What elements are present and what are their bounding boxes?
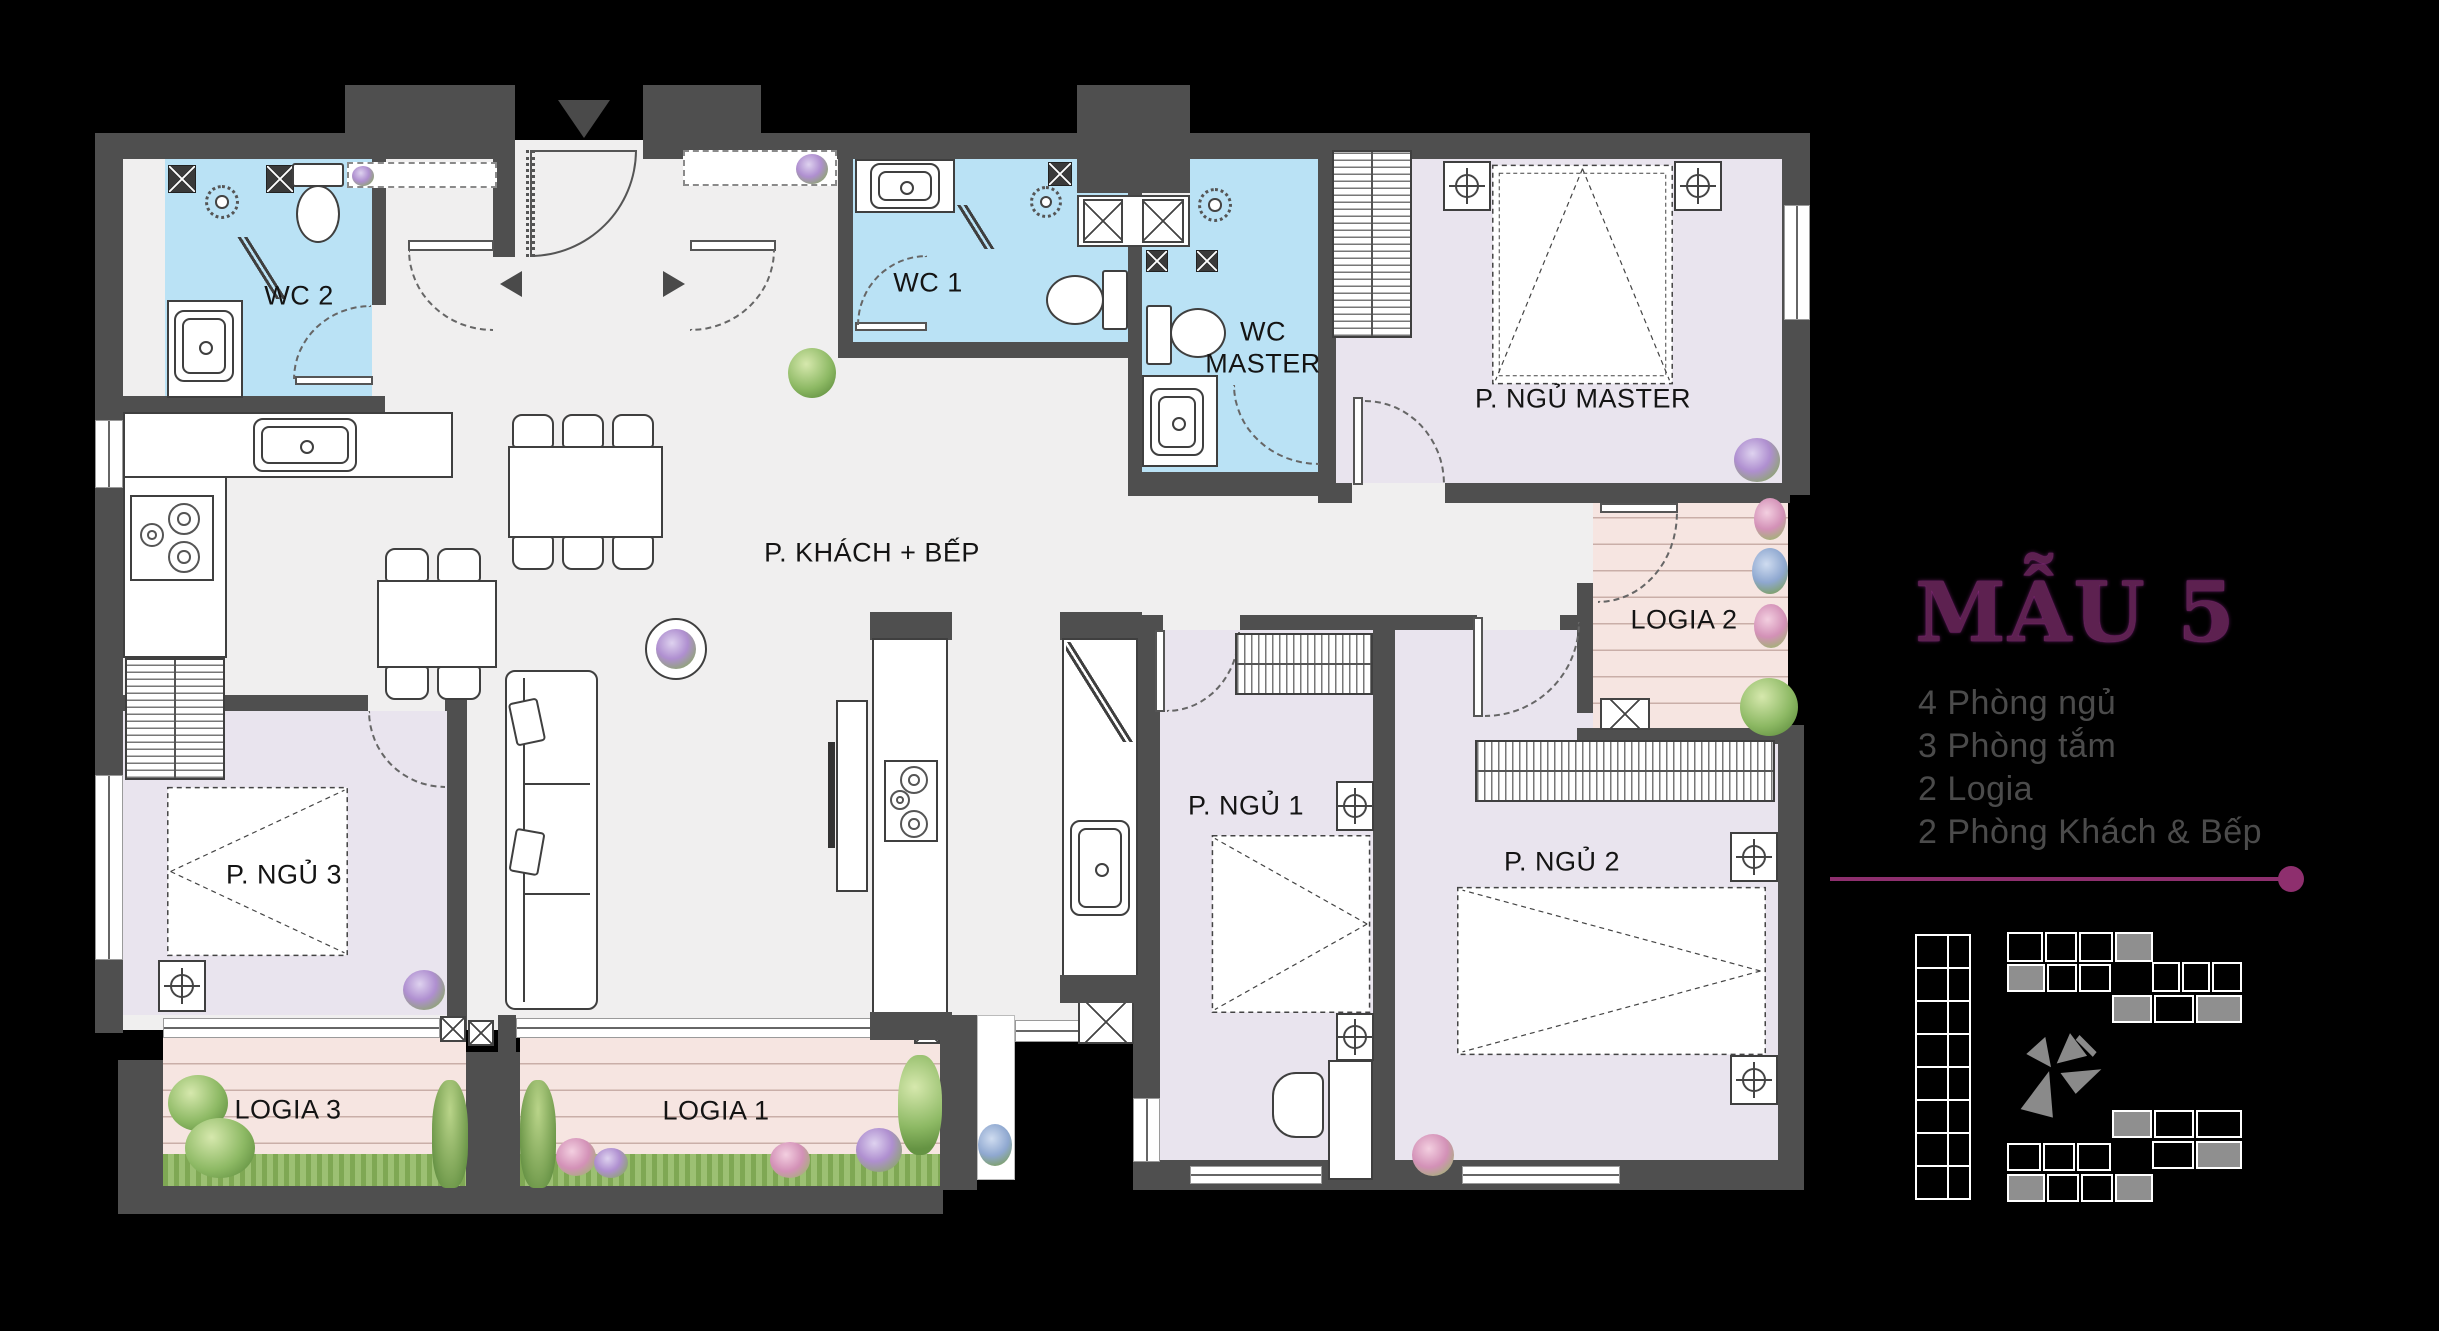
wc1-toilet-bowl (1046, 275, 1104, 325)
wcm-vent2-icon (1196, 250, 1218, 272)
wall-bedroom1-2-divider (1373, 630, 1395, 1160)
logia1-bush (898, 1055, 942, 1155)
island2-cap-top (1060, 612, 1142, 640)
wall-bedroom2-right (1778, 725, 1804, 1190)
room-label-wc-master: WC MASTER (1200, 316, 1326, 381)
kitchen-sink (253, 418, 357, 472)
wc2-vent-icon (168, 165, 196, 193)
small-table-chair (385, 666, 429, 700)
wall-bedroom3-right (447, 695, 467, 1030)
keyplan-building-left (1915, 934, 1971, 1200)
pillar-xbox-logia3 (440, 1016, 466, 1042)
wall-logia1-right-pillar (940, 1015, 977, 1190)
dining-chair (612, 414, 654, 448)
keyplan-unit (2047, 1174, 2079, 1202)
flower-front-window (978, 1124, 1012, 1166)
kitchen-wardrobe-rack (125, 658, 225, 780)
keyplan-unit (2079, 932, 2113, 962)
bedroom1-nightstand (1336, 1013, 1374, 1061)
pillar-xbox-logia1 (468, 1020, 494, 1046)
kitchen-stove (130, 495, 214, 581)
logia1-flowers (770, 1142, 810, 1178)
unit-title: MẪU 5 (1915, 572, 2237, 654)
bedroom1-door-leaf (1155, 630, 1165, 712)
logia3-tall-plant (432, 1080, 468, 1188)
wall-hall-center (1240, 615, 1477, 630)
wall-logia3-left-pillar (118, 1060, 163, 1186)
lamp-icon (170, 974, 194, 998)
lamp-icon (1742, 845, 1766, 869)
keyplan-unit (2043, 1143, 2075, 1171)
dining-chair (512, 536, 554, 570)
keyplan-unit-highlight (2196, 995, 2242, 1023)
burner-icon (900, 766, 928, 794)
plant-living (788, 348, 836, 398)
room-label-wc2: WC 2 (264, 281, 334, 312)
logia3-bush (185, 1118, 255, 1178)
wall-logia3-base (118, 1186, 466, 1214)
room-label-logia1: LOGIA 1 (662, 1096, 769, 1127)
lamp-icon (1742, 1068, 1766, 1092)
keyplan-unit-highlight (2115, 1174, 2153, 1202)
master-nightstand (1674, 161, 1722, 211)
keyplan-unit (2152, 962, 2180, 992)
small-table-chair (437, 548, 481, 582)
keyplan-unit-highlight (2007, 1174, 2045, 1202)
keyplan-unit (2152, 1141, 2194, 1169)
bedroom2-bed (1453, 885, 1770, 1057)
logia2-plant (1754, 498, 1786, 540)
wall-logia-center-pillar (466, 1052, 520, 1214)
keyplan-unit (2045, 932, 2077, 962)
wall-wc1-bottom (838, 342, 1140, 358)
logia2-plant (1752, 548, 1788, 594)
wall-entry-left (493, 133, 515, 257)
bedroom2-nightstand (1730, 832, 1778, 882)
sill-plant (352, 166, 374, 186)
island1-stove (884, 760, 938, 842)
wc1-vent-icon (1048, 162, 1072, 186)
window-left-kitchen (95, 420, 123, 488)
burner-icon (890, 790, 910, 810)
room-label-bedroom2: P. NGỦ 2 (1504, 847, 1620, 878)
logia1-flowers (856, 1128, 902, 1172)
wc1-toilet-tank (1102, 270, 1128, 330)
window-master-right (1784, 205, 1810, 320)
keyplan-unit (2079, 964, 2111, 992)
keyplan-unit-highlight (2112, 1110, 2152, 1138)
bedroom3-nightstand (158, 960, 206, 1012)
wall-top-left (95, 133, 515, 159)
keyplan-unit (2154, 1110, 2194, 1138)
room-label-bedroom1: P. NGỦ 1 (1188, 791, 1304, 822)
window-bedroom1-bottom (1190, 1166, 1322, 1184)
keyplan-unit (2196, 1110, 2242, 1138)
pillar-xbox-logia2 (1600, 698, 1650, 730)
burner-icon (168, 503, 200, 535)
bedroom2-door-leaf (1473, 617, 1483, 717)
master-nightstand (1443, 161, 1491, 211)
bedroom1-chair (1272, 1072, 1324, 1138)
wc1-shower-icon (1030, 186, 1062, 218)
dining-chair (562, 414, 604, 448)
bedroom1-bed (1210, 833, 1372, 1015)
wall-living-logia-stub (498, 1015, 516, 1057)
wc2-toilet-tank (292, 163, 344, 187)
closet-xbox (1142, 199, 1184, 243)
wall-top-block-left (345, 85, 515, 135)
small-table-chair (385, 548, 429, 582)
keyplan-unit-highlight (2115, 932, 2153, 962)
wcm-shower-icon (1198, 188, 1232, 222)
entry-door-leaf (526, 150, 535, 257)
room-label-logia3: LOGIA 3 (234, 1095, 341, 1126)
logia1-tall-plant (520, 1080, 556, 1188)
wc1-shower-glass (950, 205, 1008, 249)
island2-sink (1070, 820, 1130, 916)
keyplan-unit (2047, 964, 2077, 992)
entrance-arrow-icon (558, 100, 610, 138)
lamp-icon (1455, 174, 1479, 198)
wall-master-bottom-right (1445, 483, 1790, 503)
bedroom2-nightstand (1730, 1055, 1778, 1105)
wcm-toilet-tank (1146, 305, 1172, 365)
bedroom1-nightstand (1336, 781, 1374, 831)
window-logia3-top (163, 1018, 440, 1038)
wc2-vent2-icon (266, 165, 294, 193)
wall-logia1-base (513, 1186, 943, 1214)
wc2-sink (174, 310, 234, 382)
master-wardrobe-rack (1332, 150, 1412, 338)
master-door-leaf (1353, 397, 1363, 485)
wc2-shower-icon (205, 185, 239, 219)
feature-list: 4 Phòng ngủ 3 Phòng tắm 2 Logia 2 Phòng … (1918, 682, 2262, 854)
tv-console (836, 700, 868, 892)
lamp-icon (1343, 1025, 1367, 1049)
keyplan-unit-highlight (2007, 964, 2045, 992)
burner-icon (900, 810, 928, 838)
closet-xbox (1083, 199, 1123, 243)
room-label-wc1: WC 1 (893, 268, 963, 299)
dining-chair (612, 536, 654, 570)
room-label-living-kitchen: P. KHÁCH + BẾP (764, 538, 980, 569)
keyplan-unit-highlight (2196, 1141, 2242, 1169)
pillar-xbox-aisle (1078, 1000, 1134, 1044)
room-label-master-bedroom: P. NGỦ MASTER (1475, 384, 1691, 415)
small-table (377, 580, 497, 668)
bedroom1-desk (1328, 1060, 1373, 1180)
keyplan-unit (2081, 1174, 2113, 1202)
dining-chair (512, 414, 554, 448)
keyplan-unit (2154, 995, 2194, 1023)
bedroom2-plant (1412, 1134, 1454, 1176)
feature-item: 2 Phòng Khách & Bếp (1918, 811, 2262, 854)
wall-wcm-bottom (1128, 472, 1320, 496)
keyplan-unit (2212, 962, 2242, 992)
island2-cabinet (1066, 642, 1134, 742)
wall-logia2-left (1577, 583, 1593, 713)
wall-wc1-left (838, 133, 853, 343)
dining-chair (562, 536, 604, 570)
site-key-plan (1913, 928, 2253, 1213)
rug-plant (656, 629, 696, 669)
window-left-bedroom3 (95, 775, 123, 960)
logia2-bush (1740, 678, 1798, 736)
logia1-flowers (556, 1138, 596, 1176)
island1-cap-bottom (870, 1012, 952, 1040)
wcm-vent-icon (1146, 250, 1168, 272)
master-bed (1490, 162, 1675, 387)
burner-icon (168, 541, 200, 573)
small-table-chair (437, 666, 481, 700)
keyplan-unit (2077, 1143, 2111, 1171)
feature-item: 4 Phòng ngủ (1918, 682, 2262, 725)
door-arrow-left-icon (500, 271, 522, 297)
logia2-plant (1754, 604, 1788, 648)
divider-line (1830, 877, 2282, 881)
window-bedroom2-bottom (1462, 1166, 1620, 1184)
wc1-sink (870, 163, 940, 209)
info-panel: MẪU 5 4 Phòng ngủ 3 Phòng tắm 2 Logia 2 … (1830, 560, 2430, 1320)
keyplan-unit (2182, 962, 2210, 992)
feature-item: 3 Phòng tắm (1918, 725, 2262, 768)
bedroom3-plant (403, 970, 445, 1010)
wall-wc2-bottom (123, 396, 385, 412)
lamp-icon (1686, 174, 1710, 198)
burner-icon (140, 523, 164, 547)
wc2-toilet-bowl (296, 185, 340, 243)
bedroom2-wardrobe-rack (1475, 740, 1775, 802)
room-label-logia2: LOGIA 2 (1630, 605, 1737, 636)
logia2-door-leaf (1600, 503, 1678, 513)
keyplan-unit-highlight (2112, 995, 2152, 1023)
island2-cap-bottom (1060, 975, 1142, 1003)
divider-dot-icon (2278, 866, 2304, 892)
keyplan-unit (2007, 1143, 2041, 1171)
floor-plan: WC 2 WC 1 WC MASTER P. NGỦ MASTER P. KHÁ… (0, 0, 1820, 1331)
island1-cap-top (870, 612, 952, 640)
lamp-icon (1343, 794, 1367, 818)
wall-top-block-right (643, 85, 761, 135)
feature-item: 2 Logia (1918, 768, 2262, 811)
floorplan-canvas: WC 2 WC 1 WC MASTER P. NGỦ MASTER P. KHÁ… (0, 0, 2439, 1331)
keyplan-unit (2007, 932, 2043, 962)
bedroom1-wardrobe-rack (1235, 633, 1373, 695)
logia1-flowers (594, 1148, 628, 1178)
room-label-bedroom3: P. NGỦ 3 (226, 860, 342, 891)
tv-screen (828, 742, 835, 848)
sill-plant (796, 154, 828, 184)
master-plant (1734, 438, 1780, 482)
wall-master-bottom-left (1318, 483, 1352, 503)
window-bedroom1-left (1133, 1098, 1160, 1162)
dining-table (508, 446, 663, 538)
wcm-sink (1150, 388, 1204, 456)
keyplan-compass-icon (2013, 1023, 2108, 1123)
door-arrow-right-icon (663, 271, 685, 297)
